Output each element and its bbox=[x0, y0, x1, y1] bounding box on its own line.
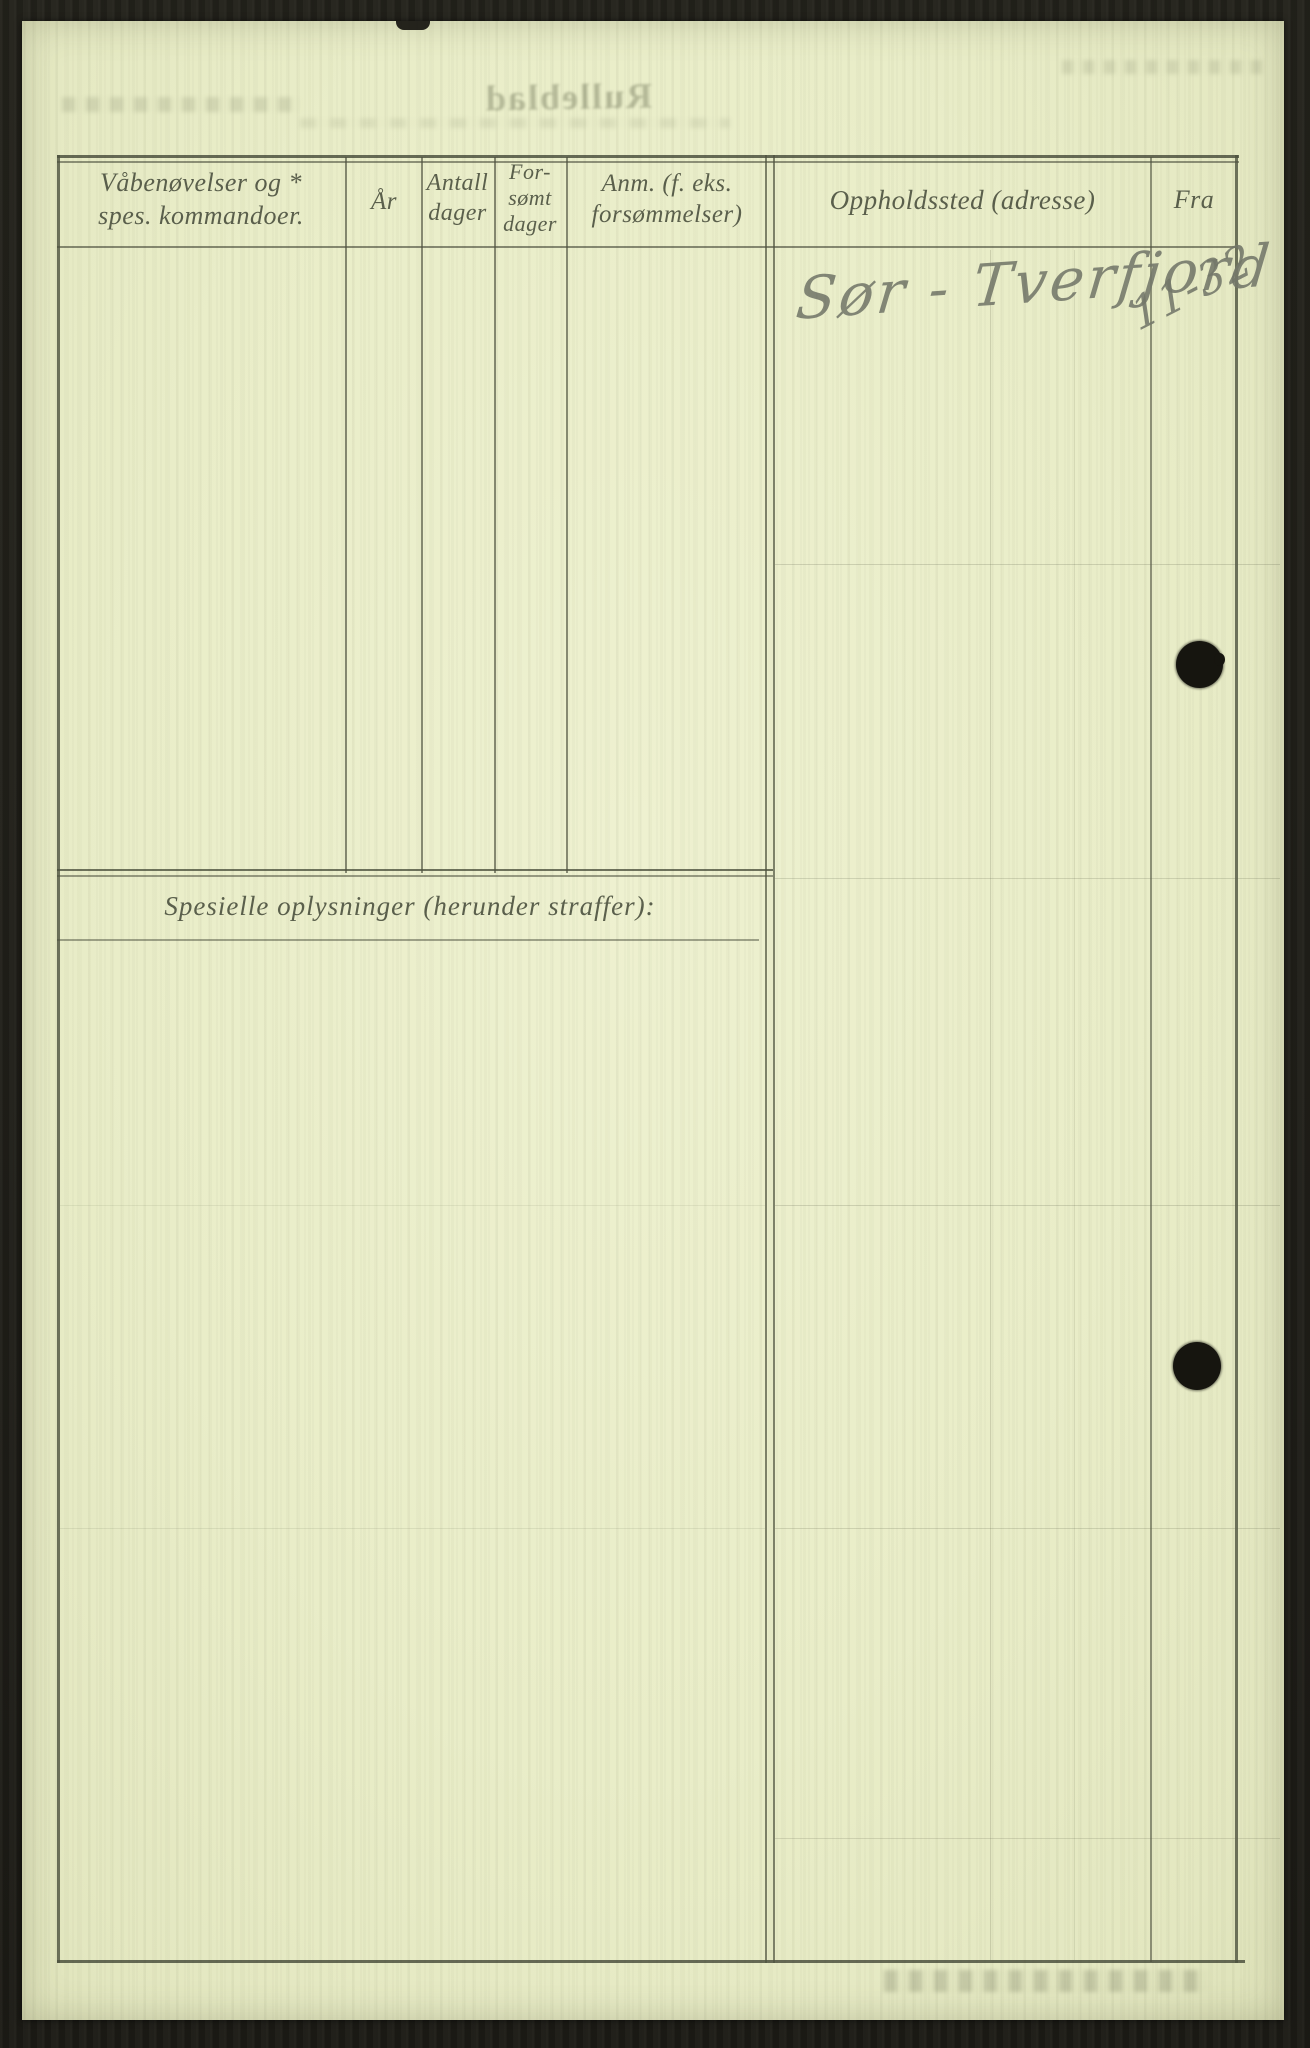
section-divider-left bbox=[765, 155, 767, 1963]
spesielle-section-label: Spesielle oplysninger (herunder straffer… bbox=[60, 891, 760, 921]
left-block-bottom-outer bbox=[57, 869, 773, 871]
ruled-vertical-2 bbox=[1074, 250, 1075, 1960]
punch-hole-top bbox=[1176, 641, 1223, 688]
header-antall-line2: dager bbox=[421, 200, 494, 227]
header-forsomt-line1: For- bbox=[494, 160, 566, 185]
ruled-horizontal-right-5 bbox=[775, 1838, 1280, 1839]
header-ar: År bbox=[347, 188, 421, 216]
section-divider-right bbox=[773, 155, 775, 1963]
paper-sheet bbox=[22, 21, 1284, 2020]
column-divider-oppholdssted-fra bbox=[1150, 157, 1152, 1962]
ruled-horizontal-right-3 bbox=[775, 1205, 1280, 1206]
table-top-border-outer bbox=[57, 155, 1239, 158]
spesielle-underline bbox=[57, 939, 759, 941]
paper-edge-notch bbox=[396, 21, 430, 30]
left-block-bottom-inner bbox=[57, 875, 773, 877]
header-vabenovelser-line1: Våbenøvelser og * bbox=[62, 168, 340, 197]
table-right-border bbox=[1235, 155, 1238, 1963]
header-anm-line2: forsømmelser) bbox=[568, 201, 766, 229]
header-forsomt-line3: dager bbox=[494, 212, 566, 237]
header-vabenovelser-line2: spes. kommandoer. bbox=[62, 201, 340, 230]
column-divider-forsomt-anm bbox=[566, 157, 568, 873]
scanned-document-page: { "document": { "kind": "scanned archiva… bbox=[0, 0, 1310, 2048]
column-divider-kommandoer-ar bbox=[345, 157, 347, 873]
table-top-border-inner bbox=[57, 161, 1239, 163]
column-divider-ar-antall bbox=[421, 157, 423, 873]
table-bottom-border bbox=[57, 1960, 1245, 1963]
header-forsomt-line2: sømt bbox=[494, 186, 566, 211]
ruled-horizontal-left-2 bbox=[60, 1528, 765, 1529]
ruled-vertical-1 bbox=[990, 250, 991, 1960]
header-fra: Fra bbox=[1152, 185, 1236, 214]
ruled-horizontal-right-1 bbox=[775, 564, 1280, 565]
punch-hole-bottom bbox=[1173, 1342, 1221, 1390]
ruled-horizontal-left-1 bbox=[60, 1205, 765, 1206]
header-oppholdssted: Oppholdssted (adresse) bbox=[775, 185, 1150, 215]
column-divider-antall-forsomt bbox=[494, 157, 496, 873]
header-anm-line1: Anm. (f. eks. bbox=[568, 170, 766, 198]
table-left-border bbox=[57, 155, 60, 1963]
ruled-horizontal-right-2 bbox=[775, 878, 1280, 879]
header-antall-line1: Antall bbox=[421, 170, 494, 197]
bleedthrough-title: Rulleblad bbox=[468, 74, 669, 119]
ruled-horizontal-right-4 bbox=[775, 1528, 1280, 1529]
punch-hole-top-notch bbox=[1214, 653, 1225, 666]
